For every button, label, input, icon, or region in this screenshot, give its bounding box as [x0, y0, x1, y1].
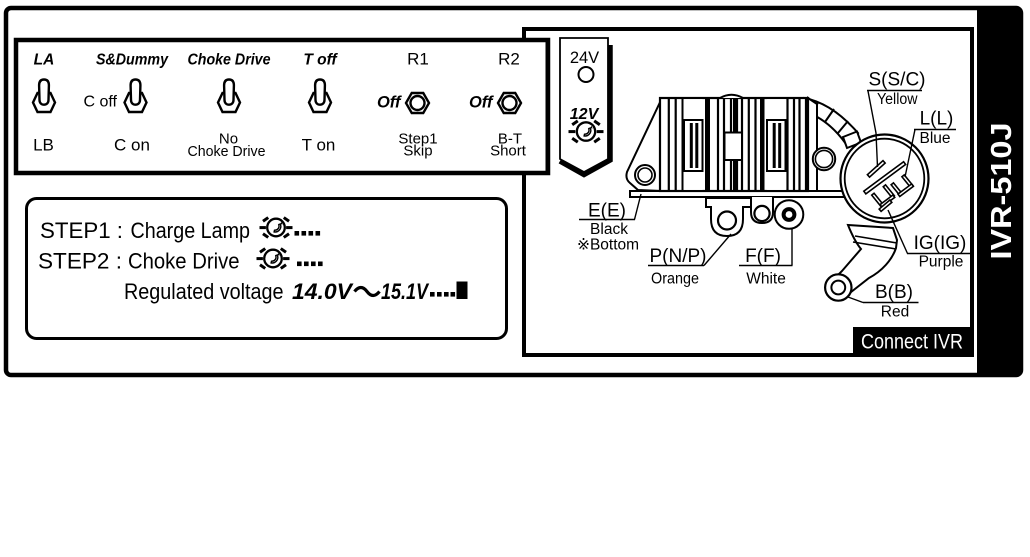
svg-text:IVR-510J: IVR-510J — [986, 123, 1018, 260]
svg-text:Connect IVR: Connect IVR — [861, 331, 963, 354]
svg-text:Choke Drive: Choke Drive — [128, 249, 240, 274]
svg-text:Short: Short — [490, 143, 527, 160]
svg-text:14.0V: 14.0V — [292, 279, 354, 304]
svg-text:LB: LB — [33, 136, 54, 155]
svg-text:Choke Drive: Choke Drive — [188, 52, 271, 69]
svg-text:Off: Off — [377, 94, 402, 112]
svg-text:Off: Off — [469, 94, 494, 112]
svg-text:Orange: Orange — [651, 271, 699, 288]
svg-text:R1: R1 — [407, 50, 429, 69]
svg-text:T off: T off — [303, 52, 338, 69]
svg-text:Regulated voltage: Regulated voltage — [124, 279, 284, 304]
svg-text:IG(IG): IG(IG) — [914, 233, 967, 254]
svg-text:L(L): L(L) — [920, 109, 954, 130]
svg-text:24V: 24V — [570, 49, 599, 67]
svg-text:T on: T on — [302, 136, 336, 155]
svg-text:C off: C off — [84, 94, 118, 111]
svg-text:Yellow: Yellow — [877, 91, 918, 108]
svg-text:※Bottom: ※Bottom — [577, 237, 639, 254]
svg-text:Blue: Blue — [919, 130, 950, 147]
svg-text:White: White — [746, 271, 786, 288]
svg-text:B(B): B(B) — [875, 282, 913, 303]
svg-text:Skip: Skip — [403, 143, 432, 160]
svg-text:R2: R2 — [498, 50, 520, 69]
svg-text:Choke Drive: Choke Drive — [188, 143, 266, 160]
svg-text:Red: Red — [881, 304, 909, 321]
svg-text:E(E): E(E) — [588, 201, 626, 222]
svg-text:STEP2 :: STEP2 : — [38, 249, 122, 274]
svg-text:Black: Black — [590, 221, 628, 238]
svg-text:STEP1 :: STEP1 : — [40, 218, 123, 243]
svg-text:F(F): F(F) — [745, 246, 781, 267]
svg-text:Purple: Purple — [919, 254, 964, 271]
svg-text:15.1V: 15.1V — [381, 279, 430, 304]
svg-text:Charge Lamp: Charge Lamp — [131, 218, 251, 243]
svg-text:C on: C on — [114, 136, 150, 155]
svg-text:P(N/P): P(N/P) — [650, 246, 707, 267]
svg-text:S&Dummy: S&Dummy — [96, 52, 169, 69]
svg-text:S(S/C): S(S/C) — [869, 70, 926, 91]
svg-text:LA: LA — [34, 52, 55, 69]
